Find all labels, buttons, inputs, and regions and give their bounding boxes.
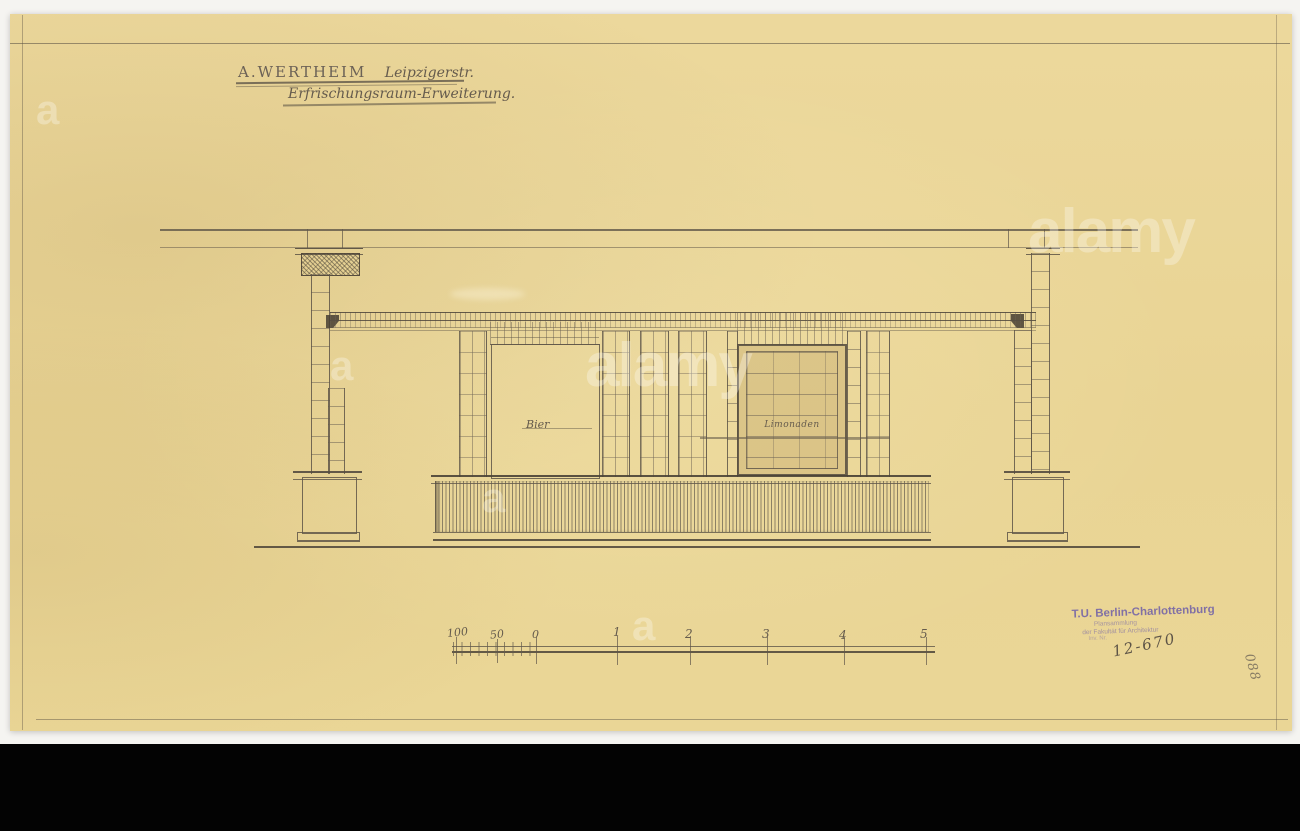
scale-tick-50 bbox=[497, 639, 498, 663]
scale-subdivisions bbox=[453, 642, 538, 656]
title-street: Leipzigerstr. bbox=[385, 65, 474, 81]
bier-panel-slats bbox=[490, 322, 600, 345]
ground-line bbox=[254, 546, 1140, 548]
left-pillar-trellis-lower bbox=[328, 388, 345, 474]
limonaden-panel-slats bbox=[737, 313, 843, 345]
bier-panel-top-line bbox=[491, 337, 599, 338]
scale-label-4: 4 bbox=[839, 628, 847, 642]
bier-sign-panel bbox=[491, 344, 600, 479]
trellis-strip bbox=[459, 331, 487, 477]
border-line-top bbox=[10, 43, 1290, 44]
limonaden-shelf-panel: Limonaden bbox=[737, 344, 847, 476]
left-plinth bbox=[297, 532, 360, 542]
alamy-footer-bar: alamy Image ID: 2JMMBN5 www.alamy.com bbox=[0, 744, 1300, 831]
right-plinth bbox=[1007, 532, 1068, 542]
border-line-left bbox=[22, 15, 23, 730]
title-company: A.WERTHEIM bbox=[238, 63, 366, 81]
bier-label-underline bbox=[522, 428, 592, 429]
trellis-strip bbox=[866, 331, 890, 477]
scale-tick-100 bbox=[456, 637, 457, 664]
right-pillar-trellis-lower bbox=[1014, 330, 1032, 474]
scale-label-2: 2 bbox=[685, 627, 693, 641]
trellis-strip bbox=[640, 331, 669, 477]
eraser-smudge bbox=[450, 288, 525, 300]
trellis-strip bbox=[602, 331, 630, 477]
right-pillar-trellis-shaft bbox=[1031, 253, 1050, 474]
border-line-bottom bbox=[36, 719, 1288, 720]
left-capital-ornament bbox=[301, 253, 360, 276]
counter-base-rail bbox=[433, 532, 931, 541]
scale-label-100: 100 bbox=[446, 625, 468, 640]
shelf-rail-line bbox=[700, 437, 890, 439]
scale-label-1: 1 bbox=[613, 625, 621, 639]
trellis-strip-narrow bbox=[847, 331, 861, 477]
scale-tick-2 bbox=[690, 637, 691, 665]
beam-joint-tick bbox=[342, 229, 343, 248]
scale-tick-0 bbox=[536, 637, 537, 664]
stock-photo-frame: A.WERTHEIM Leipzigerstr. Erfrischungsrau… bbox=[0, 0, 1300, 831]
scale-tick-1 bbox=[617, 636, 618, 665]
limonaden-shelf-grid bbox=[746, 351, 838, 469]
drawing-title-line2: Erfrischungsraum-Erweiterung. bbox=[288, 86, 515, 102]
pergola-rail-lower bbox=[330, 320, 1036, 328]
limonaden-label: Limonaden bbox=[739, 420, 845, 430]
beam-joint-tick bbox=[1044, 229, 1045, 248]
beam-joint-tick bbox=[1008, 229, 1009, 248]
border-line-right bbox=[1276, 15, 1277, 730]
scale-tick-5 bbox=[926, 637, 927, 665]
scale-label-50: 50 bbox=[489, 627, 504, 641]
bier-label: Bier bbox=[526, 418, 549, 431]
beam-joint-tick bbox=[307, 229, 308, 248]
right-pedestal bbox=[1012, 477, 1064, 534]
left-pedestal bbox=[302, 477, 357, 534]
trellis-strip bbox=[678, 331, 707, 477]
scale-label-5: 5 bbox=[920, 627, 928, 641]
scale-tick-3 bbox=[767, 637, 768, 665]
scale-label-0: 0 bbox=[532, 628, 539, 641]
scale-label-3: 3 bbox=[762, 627, 770, 641]
counter-reeded-front bbox=[435, 481, 929, 532]
